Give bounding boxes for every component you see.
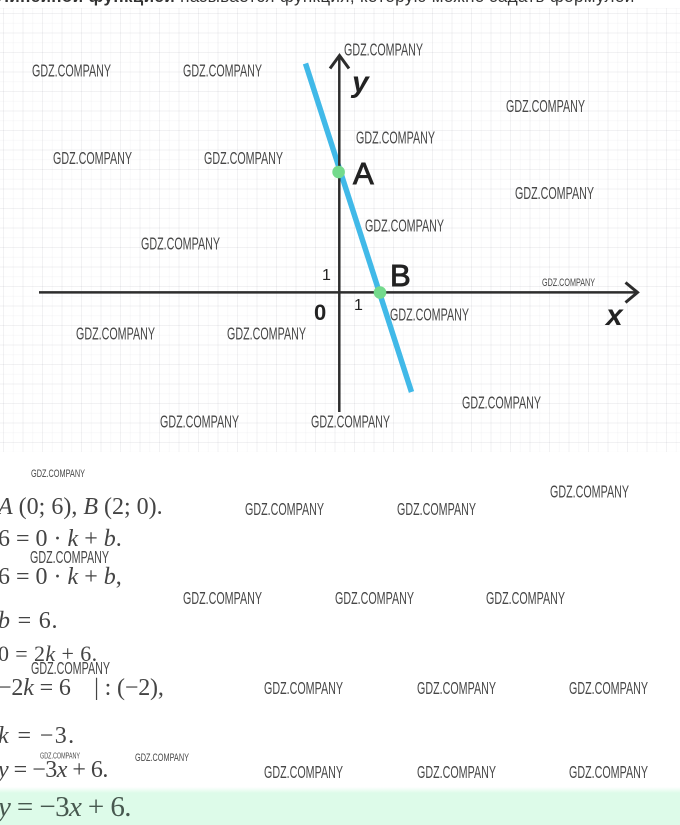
svg-text:GDZ.COMPANY: GDZ.COMPANY — [264, 678, 343, 698]
svg-text:GDZ.COMPANY: GDZ.COMPANY — [76, 324, 155, 344]
svg-text:GDZ.COMPANY: GDZ.COMPANY — [204, 148, 283, 168]
svg-text:GDZ.COMPANY: GDZ.COMPANY — [183, 588, 262, 608]
svg-text:GDZ.COMPANY: GDZ.COMPANY — [31, 468, 85, 480]
svg-text:GDZ.COMPANY: GDZ.COMPANY — [141, 234, 220, 254]
svg-text:GDZ.COMPANY: GDZ.COMPANY — [335, 588, 414, 608]
svg-text:GDZ.COMPANY: GDZ.COMPANY — [264, 762, 343, 782]
svg-text:GDZ.COMPANY: GDZ.COMPANY — [32, 61, 111, 81]
svg-text:GDZ.COMPANY: GDZ.COMPANY — [160, 412, 239, 432]
svg-text:GDZ.COMPANY: GDZ.COMPANY — [365, 216, 444, 236]
svg-text:GDZ.COMPANY: GDZ.COMPANY — [542, 277, 595, 289]
svg-text:GDZ.COMPANY: GDZ.COMPANY — [486, 588, 565, 608]
svg-text:GDZ.COMPANY: GDZ.COMPANY — [550, 482, 629, 502]
svg-text:GDZ.COMPANY: GDZ.COMPANY — [344, 40, 423, 60]
svg-text:GDZ.COMPANY: GDZ.COMPANY — [245, 499, 324, 519]
svg-text:GDZ.COMPANY: GDZ.COMPANY — [506, 96, 585, 116]
svg-text:GDZ.COMPANY: GDZ.COMPANY — [390, 305, 469, 325]
svg-text:GDZ.COMPANY: GDZ.COMPANY — [135, 752, 189, 764]
svg-text:GDZ.COMPANY: GDZ.COMPANY — [515, 183, 594, 203]
svg-text:GDZ.COMPANY: GDZ.COMPANY — [397, 499, 476, 519]
svg-text:GDZ.COMPANY: GDZ.COMPANY — [227, 324, 306, 344]
svg-text:GDZ.COMPANY: GDZ.COMPANY — [183, 61, 262, 81]
svg-text:GDZ.COMPANY: GDZ.COMPANY — [356, 128, 435, 148]
svg-text:GDZ.COMPANY: GDZ.COMPANY — [462, 393, 541, 413]
svg-text:GDZ.COMPANY: GDZ.COMPANY — [417, 678, 496, 698]
svg-text:GDZ.COMPANY: GDZ.COMPANY — [311, 412, 390, 432]
svg-text:GDZ.COMPANY: GDZ.COMPANY — [569, 762, 648, 782]
svg-text:GDZ.COMPANY: GDZ.COMPANY — [569, 678, 648, 698]
svg-text:GDZ.COMPANY: GDZ.COMPANY — [417, 762, 496, 782]
svg-text:GDZ.COMPANY: GDZ.COMPANY — [53, 148, 132, 168]
